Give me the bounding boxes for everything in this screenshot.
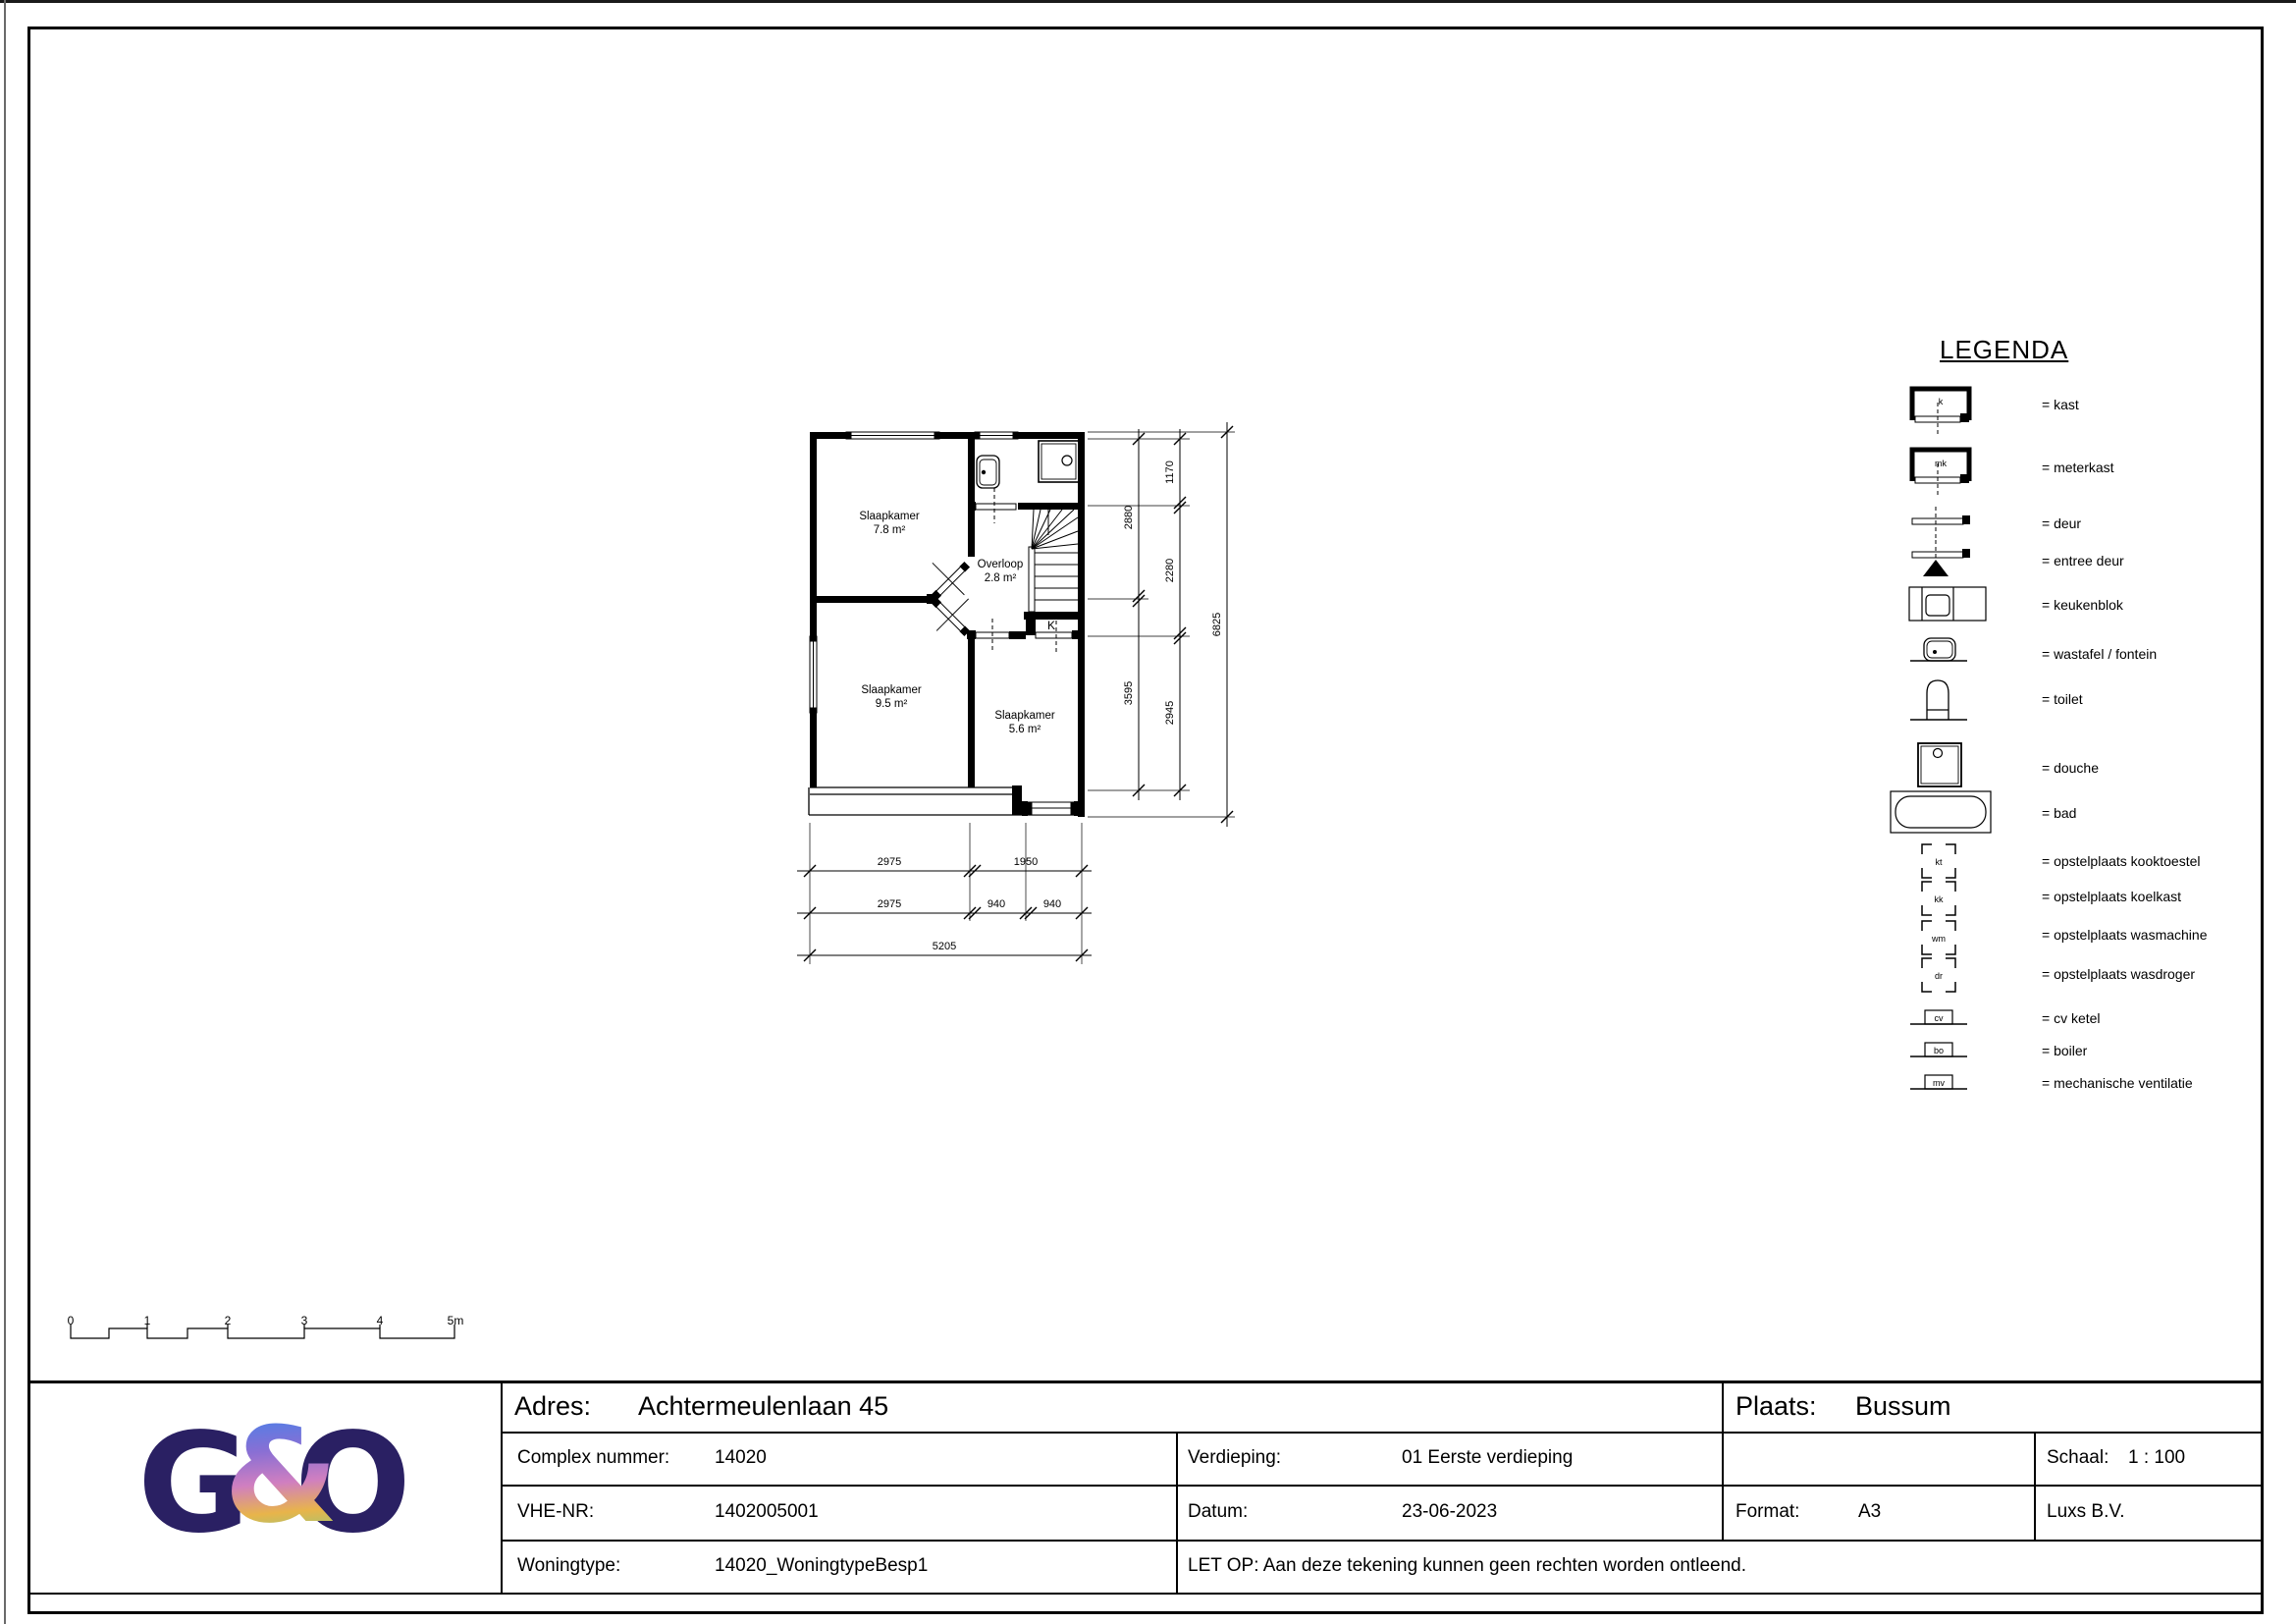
verdieping-label: Verdieping: <box>1188 1447 1281 1469</box>
legend-symbol-wasdroger: dr <box>1922 958 1955 992</box>
plan-stairs <box>1029 510 1078 612</box>
viewer-top-edge <box>0 0 2296 3</box>
svg-text:k: k <box>1939 397 1944 406</box>
room-label-slaapkamer-56: Slaapkamer <box>994 710 1055 722</box>
drawing-sheet: Slaapkamer 7.8 m² Slaapkamer 9.5 m² Slaa… <box>0 0 2296 1624</box>
legend-symbol-koelkast: kk <box>1922 882 1955 915</box>
dim-label: 2975 <box>878 856 901 868</box>
legend-item-keukenblok: = keukenblok <box>2042 596 2123 614</box>
floor-plan: Slaapkamer 7.8 m² Slaapkamer 9.5 m² Slaa… <box>746 412 1296 1001</box>
plan-windows <box>810 432 1076 815</box>
window-top-right <box>975 432 1018 439</box>
titleblock-vline-mid <box>1176 1432 1178 1595</box>
legend-item-wasdroger: = opstelplaats wasdroger <box>2042 965 2195 983</box>
legend-symbol-wasmachine: wm <box>1922 921 1955 954</box>
logo-ampersand: & <box>224 1410 339 1542</box>
legend-item-deur: = deur <box>2042 514 2081 532</box>
schaal-value: 1 : 100 <box>2128 1447 2185 1469</box>
room-label-slaapkamer-95: Slaapkamer <box>861 684 922 696</box>
scale-bar: 0 1 2 3 4 5m <box>39 1311 491 1355</box>
legend-symbol-deur <box>1912 507 1970 540</box>
room-label-overloop: Overloop <box>978 559 1024 570</box>
datum-value: 23-06-2023 <box>1402 1501 1497 1523</box>
room-area-overloop: 2.8 m² <box>985 572 1017 584</box>
svg-text:kt: kt <box>1935 857 1943 867</box>
room-area-slaapkamer-95: 9.5 m² <box>876 698 908 710</box>
svg-text:cv: cv <box>1935 1013 1945 1023</box>
scale-tick-1: 1 <box>144 1314 151 1327</box>
legend-symbol-kooktoestel: kt <box>1922 844 1955 878</box>
bedroom-56-door <box>976 619 1009 652</box>
titleblock-hline-4 <box>30 1593 2264 1595</box>
verdieping-value: 01 Eerste verdieping <box>1402 1447 1573 1469</box>
viewer-left-edge <box>4 0 6 1624</box>
legend-item-koelkast: = opstelplaats koelkast <box>2042 888 2181 905</box>
legend-item-wastafel: = wastafel / fontein <box>2042 645 2157 663</box>
dim-label: 5205 <box>933 941 956 952</box>
svg-text:mk: mk <box>1935 459 1947 468</box>
legend-symbols: k mk <box>1885 334 2042 1110</box>
legend-item-boiler: = boiler <box>2042 1042 2087 1059</box>
sink-icon <box>977 456 999 488</box>
svg-text:wm: wm <box>1931 934 1946 944</box>
dim-label: 2945 <box>1164 701 1176 725</box>
window-left <box>810 636 817 713</box>
svg-text:dr: dr <box>1935 971 1943 981</box>
format-label: Format: <box>1735 1501 1799 1523</box>
legend-symbol-kast: k <box>1912 389 1969 437</box>
window-top-left <box>846 432 939 439</box>
legend-item-entree-deur: = entree deur <box>2042 552 2124 569</box>
woningtype-value: 14020_WoningtypeBesp1 <box>715 1555 928 1577</box>
adres-label: Adres: <box>514 1391 591 1421</box>
format-value: A3 <box>1858 1501 1881 1523</box>
adres-value: Achtermeulenlaan 45 <box>638 1391 888 1421</box>
svg-text:bo: bo <box>1934 1046 1944 1056</box>
legend-symbol-douche <box>1918 743 1961 786</box>
dim-label: 6825 <box>1211 613 1223 636</box>
plaats-value: Bussum <box>1855 1391 1951 1421</box>
bathroom-door <box>968 488 1016 523</box>
legend-symbol-entree-deur <box>1912 540 1970 576</box>
legend-item-kooktoestel: = opstelplaats kooktoestel <box>2042 852 2201 870</box>
legend-item-toilet: = toilet <box>2042 690 2083 708</box>
legend-item-kast: = kast <box>2042 396 2079 413</box>
scale-tick-3: 3 <box>301 1314 308 1327</box>
datum-label: Datum: <box>1188 1501 1248 1523</box>
schaal-label: Schaal: <box>2047 1447 2109 1469</box>
legend-item-wasmachine: = opstelplaats wasmachine <box>2042 926 2208 944</box>
window-bottom <box>1027 802 1076 815</box>
legend-symbol-keukenblok <box>1909 587 1986 621</box>
shower-icon <box>1039 441 1079 482</box>
legend-item-cv-ketel: = cv ketel <box>2042 1009 2101 1027</box>
plaats-label: Plaats: <box>1735 1391 1817 1421</box>
legend-symbol-mech-ventilatie: mv <box>1910 1075 1967 1089</box>
legend-symbol-meterkast: mk <box>1912 450 1969 498</box>
vhe-nr-value: 1402005001 <box>715 1501 819 1523</box>
titleblock-vline-schaal <box>2034 1432 2036 1540</box>
legend-item-meterkast: = meterkast <box>2042 459 2114 476</box>
scale-tick-5m: 5m <box>448 1314 464 1327</box>
woningtype-label: Woningtype: <box>517 1555 620 1577</box>
titleblock-vline-logo <box>501 1380 503 1595</box>
titleblock-hline-2 <box>501 1485 2264 1487</box>
legend-item-douche: = douche <box>2042 759 2099 777</box>
bedrijf-naam: Luxs B.V. <box>2047 1501 2125 1523</box>
legend-symbol-cv-ketel: cv <box>1910 1010 1967 1024</box>
dim-label: 1170 <box>1164 460 1176 484</box>
room-area-slaapkamer-78: 7.8 m² <box>874 524 906 536</box>
dim-label: 1950 <box>1014 856 1038 868</box>
vhe-nr-label: VHE-NR: <box>517 1501 594 1523</box>
scale-tick-0: 0 <box>68 1314 75 1327</box>
titleblock-vline-plaats <box>1722 1380 1724 1540</box>
svg-text:kk: kk <box>1935 894 1945 904</box>
legend-symbol-boiler: bo <box>1910 1043 1967 1056</box>
dim-label: 2880 <box>1123 506 1135 529</box>
legend-symbol-wastafel <box>1910 638 1967 661</box>
dim-label: 2975 <box>878 898 901 910</box>
complex-nummer-value: 14020 <box>715 1447 767 1469</box>
room-area-slaapkamer-56: 5.6 m² <box>1009 724 1041 735</box>
legend-symbol-bad <box>1891 791 1991 833</box>
letop-notice: LET OP: Aan deze tekening kunnen geen re… <box>1188 1555 1746 1577</box>
svg-text:mv: mv <box>1933 1078 1945 1088</box>
plan-walls <box>810 432 1085 817</box>
legend-item-bad: = bad <box>2042 804 2076 822</box>
closet-label: K <box>1047 619 1055 632</box>
legend-symbol-toilet <box>1910 680 1967 720</box>
complex-nummer-label: Complex nummer: <box>517 1447 669 1469</box>
dim-labels: 2975 1950 2975 940 940 5205 2880 3595 11… <box>878 460 1223 952</box>
dim-label: 2280 <box>1164 559 1176 582</box>
titleblock-hline-1 <box>501 1432 2264 1434</box>
titleblock-hline-3 <box>501 1540 2264 1542</box>
dim-label: 940 <box>1043 898 1061 910</box>
room-label-slaapkamer-78: Slaapkamer <box>859 511 920 522</box>
legend-item-mech-ventilatie: = mechanische ventilatie <box>2042 1074 2193 1092</box>
titleblock-top-line <box>30 1380 2264 1383</box>
dim-label: 940 <box>988 898 1005 910</box>
scale-tick-2: 2 <box>225 1314 232 1327</box>
scale-tick-4: 4 <box>377 1314 384 1327</box>
dim-label: 3595 <box>1123 681 1135 705</box>
